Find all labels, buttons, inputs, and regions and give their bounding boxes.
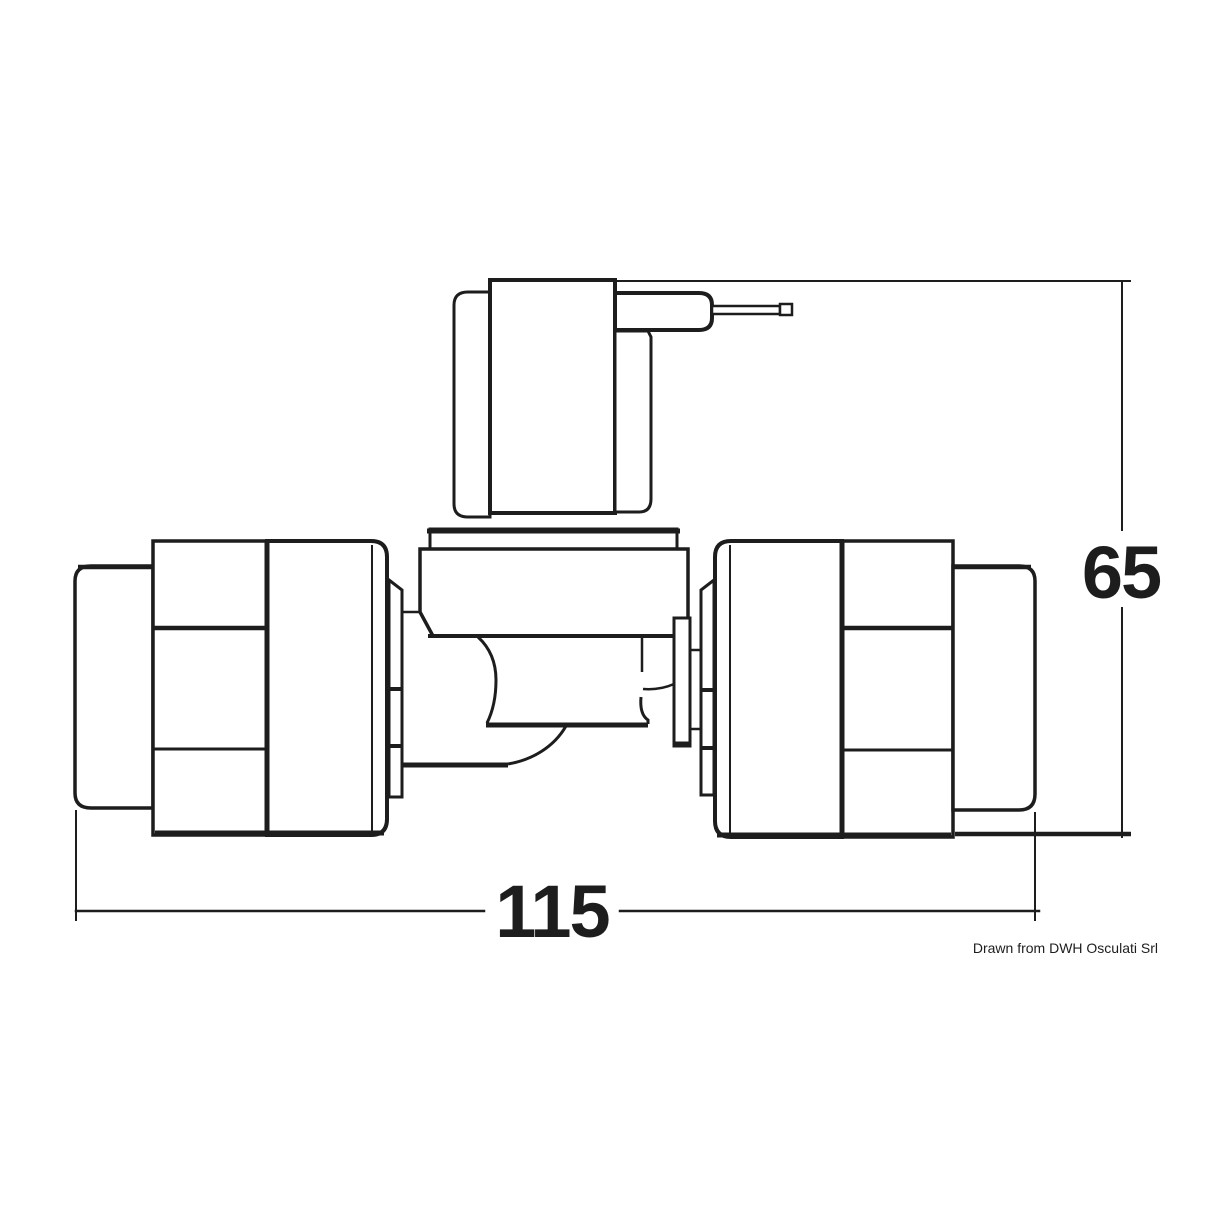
dim-65-label: 65 — [1082, 531, 1161, 614]
coil-left-cap — [454, 292, 490, 517]
right-hose-tail — [953, 566, 1035, 810]
dim-115-label: 115 — [495, 870, 609, 953]
valve-body-block — [420, 549, 688, 636]
electrical-pin-tip — [780, 304, 792, 315]
body-right-flange-disc — [674, 618, 690, 746]
right-hose-connector — [715, 541, 1035, 837]
right-port-bore-line — [643, 684, 674, 689]
right-port-flange-disc — [701, 580, 714, 795]
chamber-right-fillet — [641, 697, 648, 724]
electrical-pin — [712, 306, 780, 314]
chamber-left-arc — [478, 637, 496, 723]
left-hose-connector — [75, 541, 387, 835]
right-coupling-nut — [842, 541, 953, 837]
credit-line: Drawn from DWH Osculati Srl — [973, 940, 1158, 956]
left-connector-body — [267, 541, 387, 835]
left-hose-tail — [75, 566, 153, 808]
technical-drawing-canvas: 65 115 — [0, 0, 1214, 1214]
valve-body — [400, 529, 701, 765]
left-coupling-nut — [153, 541, 267, 835]
solenoid-coil-assembly — [454, 280, 792, 517]
outlet-pipe-fillet-arc — [508, 726, 566, 764]
din-plug-stem — [615, 331, 651, 512]
coil-body — [490, 280, 615, 513]
technical-drawing-page: 65 115 — [0, 0, 1214, 1214]
right-connector-body — [715, 541, 842, 837]
din-plug-body — [615, 293, 712, 330]
